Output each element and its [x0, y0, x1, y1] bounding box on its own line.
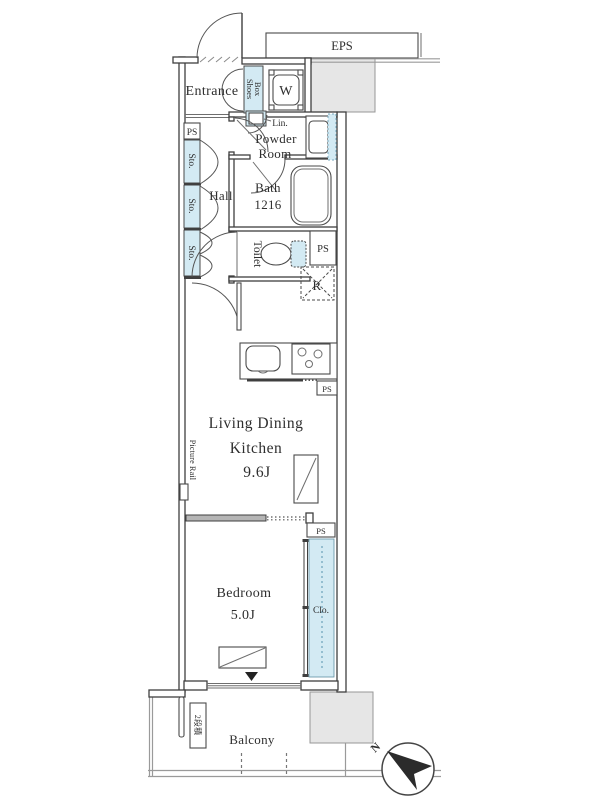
- compass-icon: N: [369, 740, 434, 795]
- label-ldk-size: 9.6J: [243, 464, 270, 481]
- label-hall: Hall: [209, 188, 233, 203]
- wall-balcony-top: [149, 690, 185, 697]
- bathtub: [291, 166, 331, 225]
- wall-top-right: [242, 58, 311, 64]
- wall-toilet-bottom: [229, 277, 310, 281]
- ldk-counter-symbol: [294, 455, 318, 503]
- window-center-marker: [245, 672, 258, 681]
- wall-ldk-bedroom: [186, 515, 266, 521]
- kitchen-sink: [246, 346, 280, 371]
- storage-doors: [200, 140, 218, 277]
- label-shoes-line2: Box: [253, 82, 263, 97]
- kitchen-counter: [240, 343, 337, 380]
- toilet-fixture: [261, 241, 306, 267]
- label-sto-1: Sto.: [186, 153, 196, 168]
- label-balcony: Balcony: [229, 732, 275, 747]
- bedroom-counter-symbol: [219, 647, 266, 668]
- stove: [292, 344, 330, 374]
- label-sto-3: Sto.: [186, 245, 196, 260]
- label-powder-line2: Room: [259, 146, 292, 161]
- label-sto-2: Sto.: [186, 198, 196, 213]
- label-bath: Bath: [255, 180, 281, 195]
- label-picture-rail: Picture Rail: [188, 440, 197, 481]
- label-ldk-line2: Kitchen: [230, 440, 283, 457]
- label-stacked-tag: 2段積: [193, 715, 203, 736]
- label-ldk-line1: Living Dining: [209, 415, 304, 432]
- label-refrigerator: R: [313, 278, 322, 293]
- label-bath-size: 1216: [254, 197, 281, 212]
- label-powder-line1: Powder: [255, 131, 297, 146]
- wall-panel: [180, 484, 188, 500]
- label-closet: Clo.: [313, 606, 329, 616]
- common-block-bottom: [310, 692, 373, 743]
- label-entrance: Entrance: [186, 84, 239, 99]
- label-ps-hall: PS: [187, 128, 198, 138]
- label-ps-right: PS: [317, 244, 329, 255]
- label-toilet: Toilet: [251, 241, 263, 268]
- label-ps-kitchen: PS: [322, 384, 332, 394]
- label-bedroom-size: 5.0J: [231, 608, 256, 623]
- ldk-door: [192, 283, 241, 330]
- entry-door: [197, 13, 242, 62]
- common-block-top: [310, 58, 375, 112]
- label-bedroom: Bedroom: [217, 586, 272, 601]
- wall-top-left: [173, 57, 198, 63]
- label-eps: EPS: [331, 39, 353, 53]
- label-ps-bedroom: PS: [316, 526, 326, 536]
- wall-bath-toilet: [229, 227, 337, 231]
- floor-plan-drawing: N EPS Entrance Shoes Box W PS Lin. Powde…: [0, 0, 600, 800]
- washbasin: [306, 114, 336, 160]
- wall-right-outer: [337, 112, 346, 692]
- wall-washer-right: [305, 58, 311, 117]
- floor-plan-page: N EPS Entrance Shoes Box W PS Lin. Powde…: [0, 0, 600, 800]
- label-washer: W: [279, 84, 293, 99]
- label-linen: Lin.: [272, 119, 288, 129]
- drain-pipe: [179, 697, 184, 737]
